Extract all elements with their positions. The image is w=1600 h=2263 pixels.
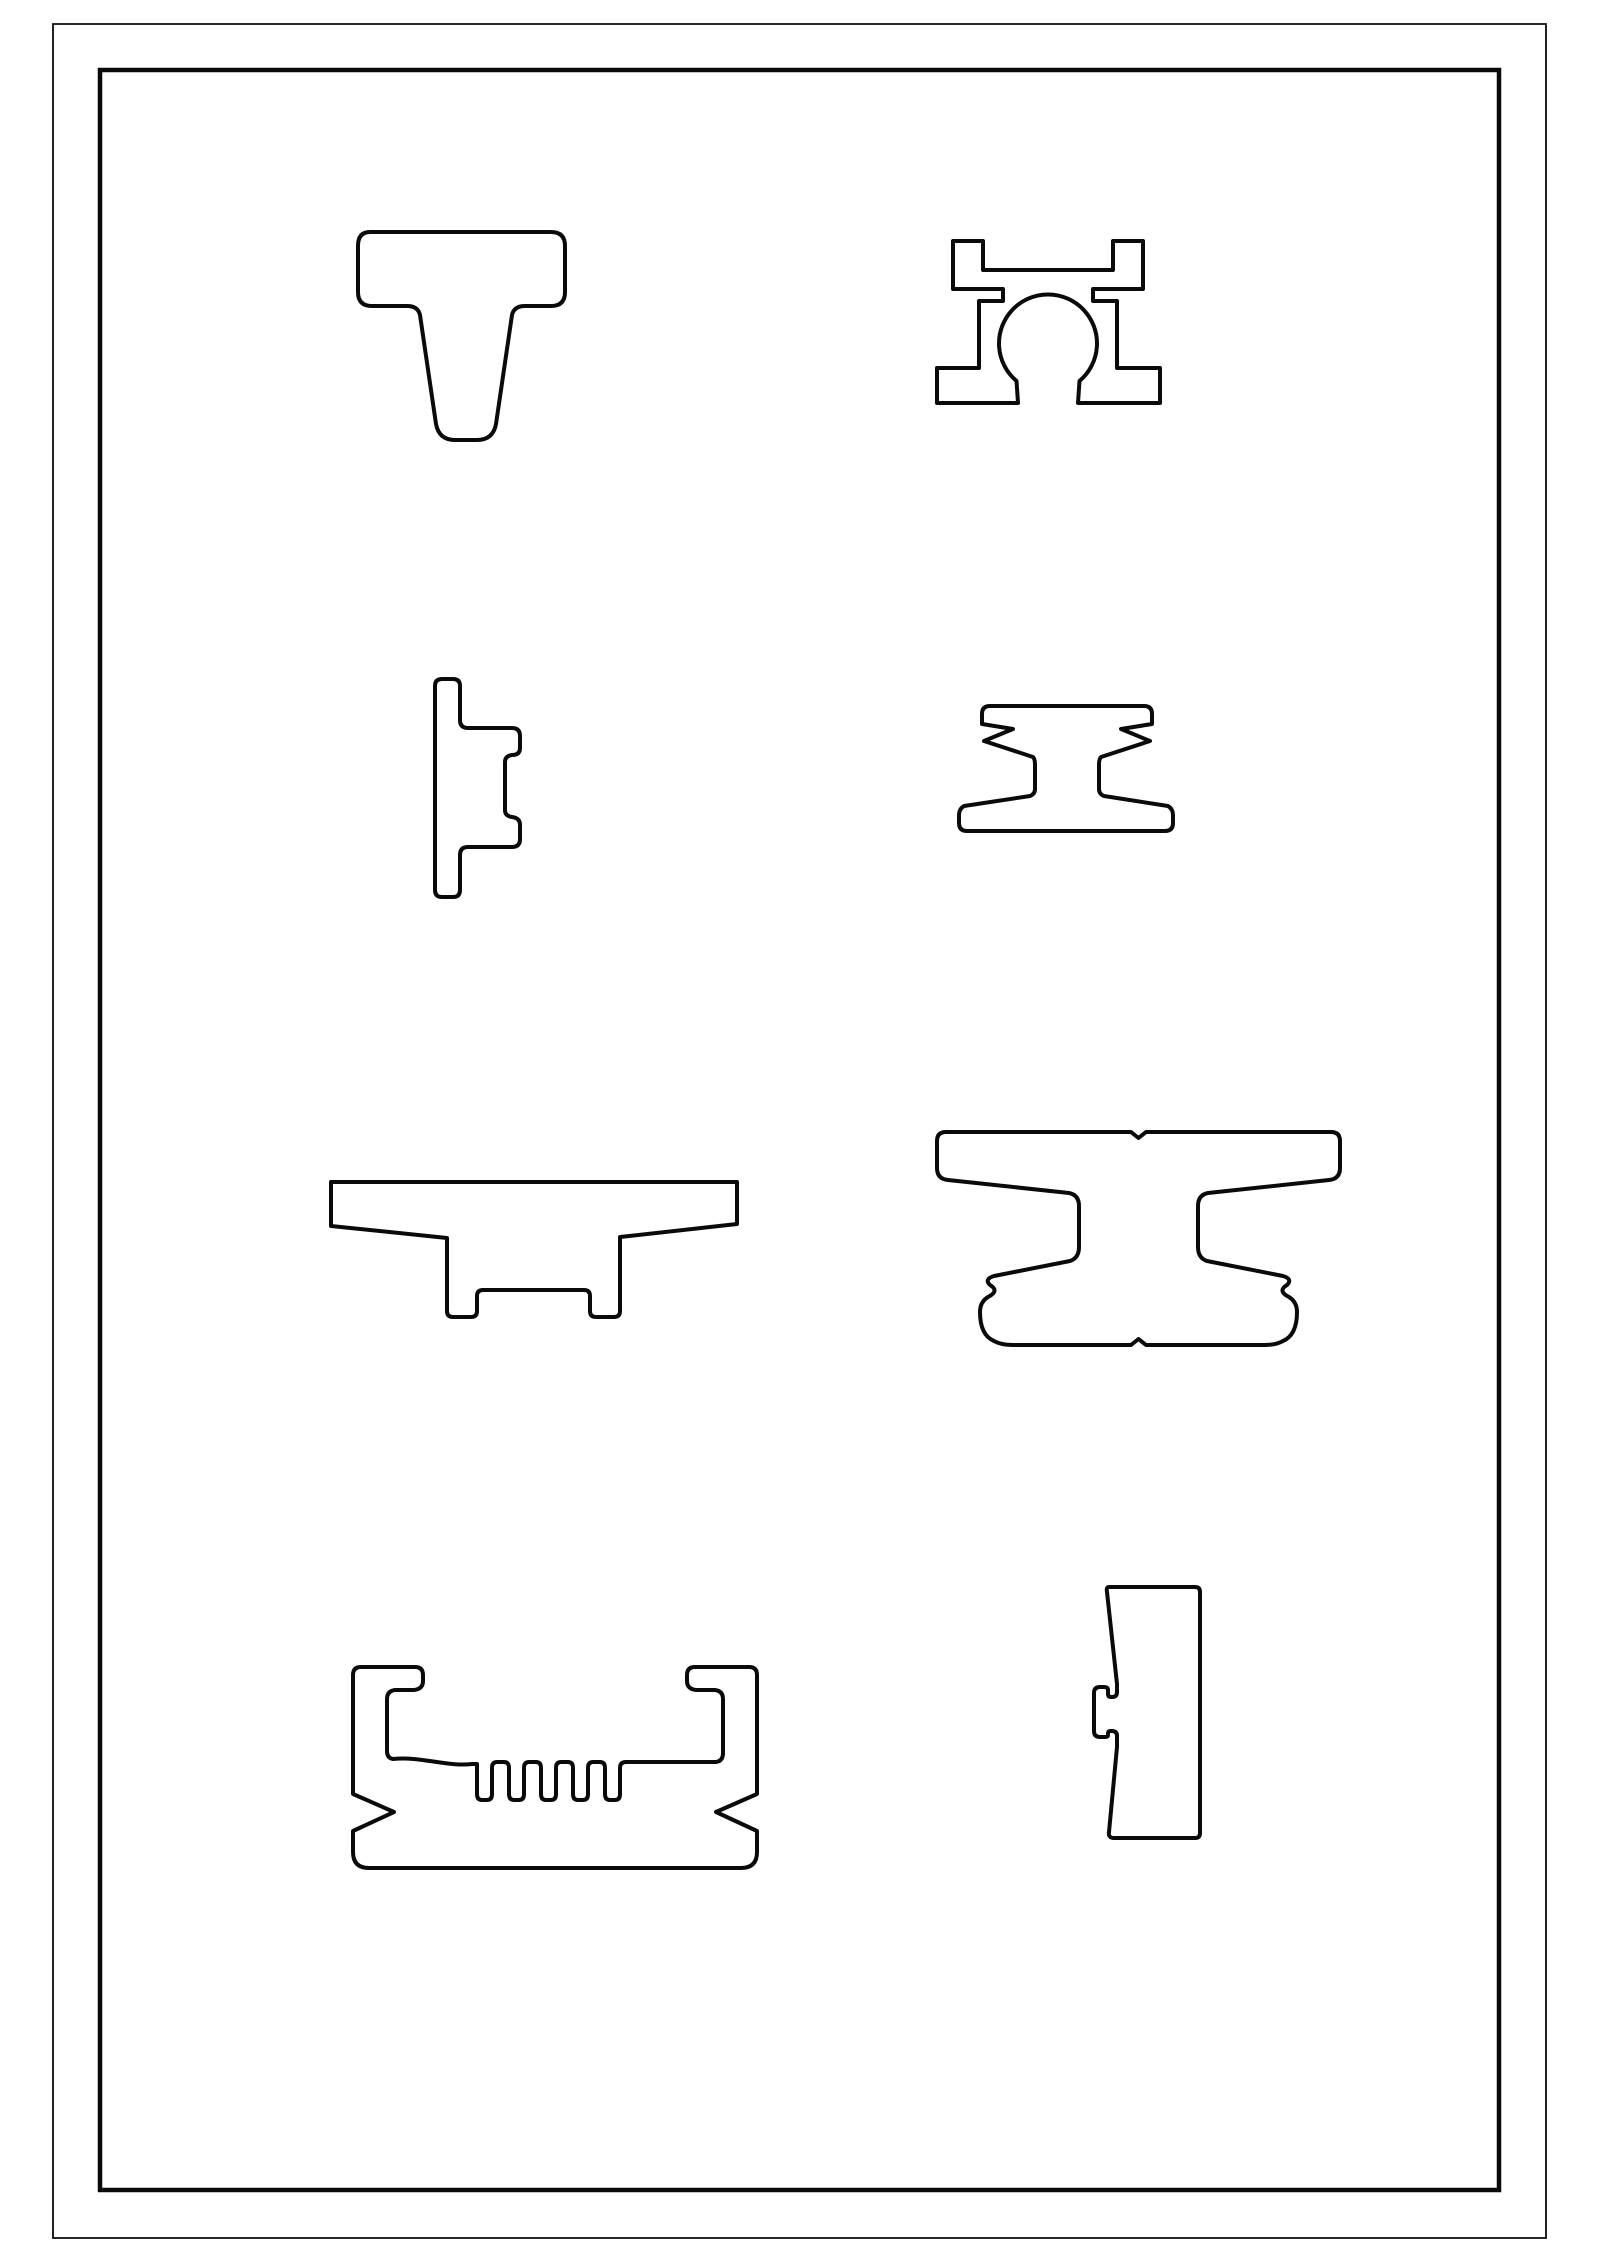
wedge-bar-tab-profile [1094,1587,1200,1838]
barbed-rail-profile [959,706,1173,831]
clamp-block-bore-profile [937,241,1160,403]
anvil-plate-profile [331,1182,737,1317]
side-bracket-key-profile [435,679,520,897]
finned-channel-profile [353,1667,757,1868]
drawing-sheet [0,0,1600,2263]
profile-sections-drawing [0,0,1600,2263]
curved-i-beam-profile [937,1132,1340,1345]
t-slot-bolt-profile [358,232,565,440]
